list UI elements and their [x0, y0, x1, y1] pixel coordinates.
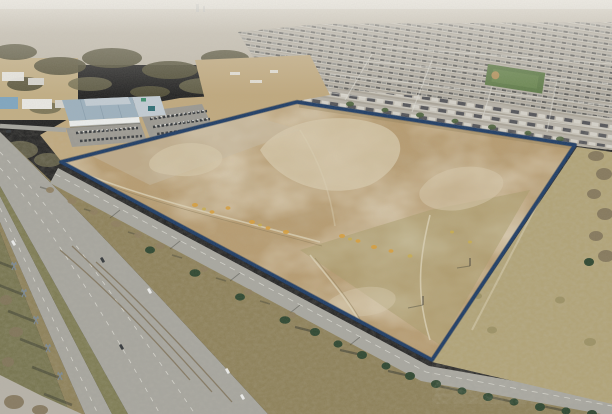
aerial-photo: Aerial drone photograph of a vacant deve…	[0, 0, 612, 414]
aerial-photo-canvas: Aerial drone photograph of a vacant deve…	[0, 0, 612, 414]
photo-grain	[0, 0, 612, 414]
